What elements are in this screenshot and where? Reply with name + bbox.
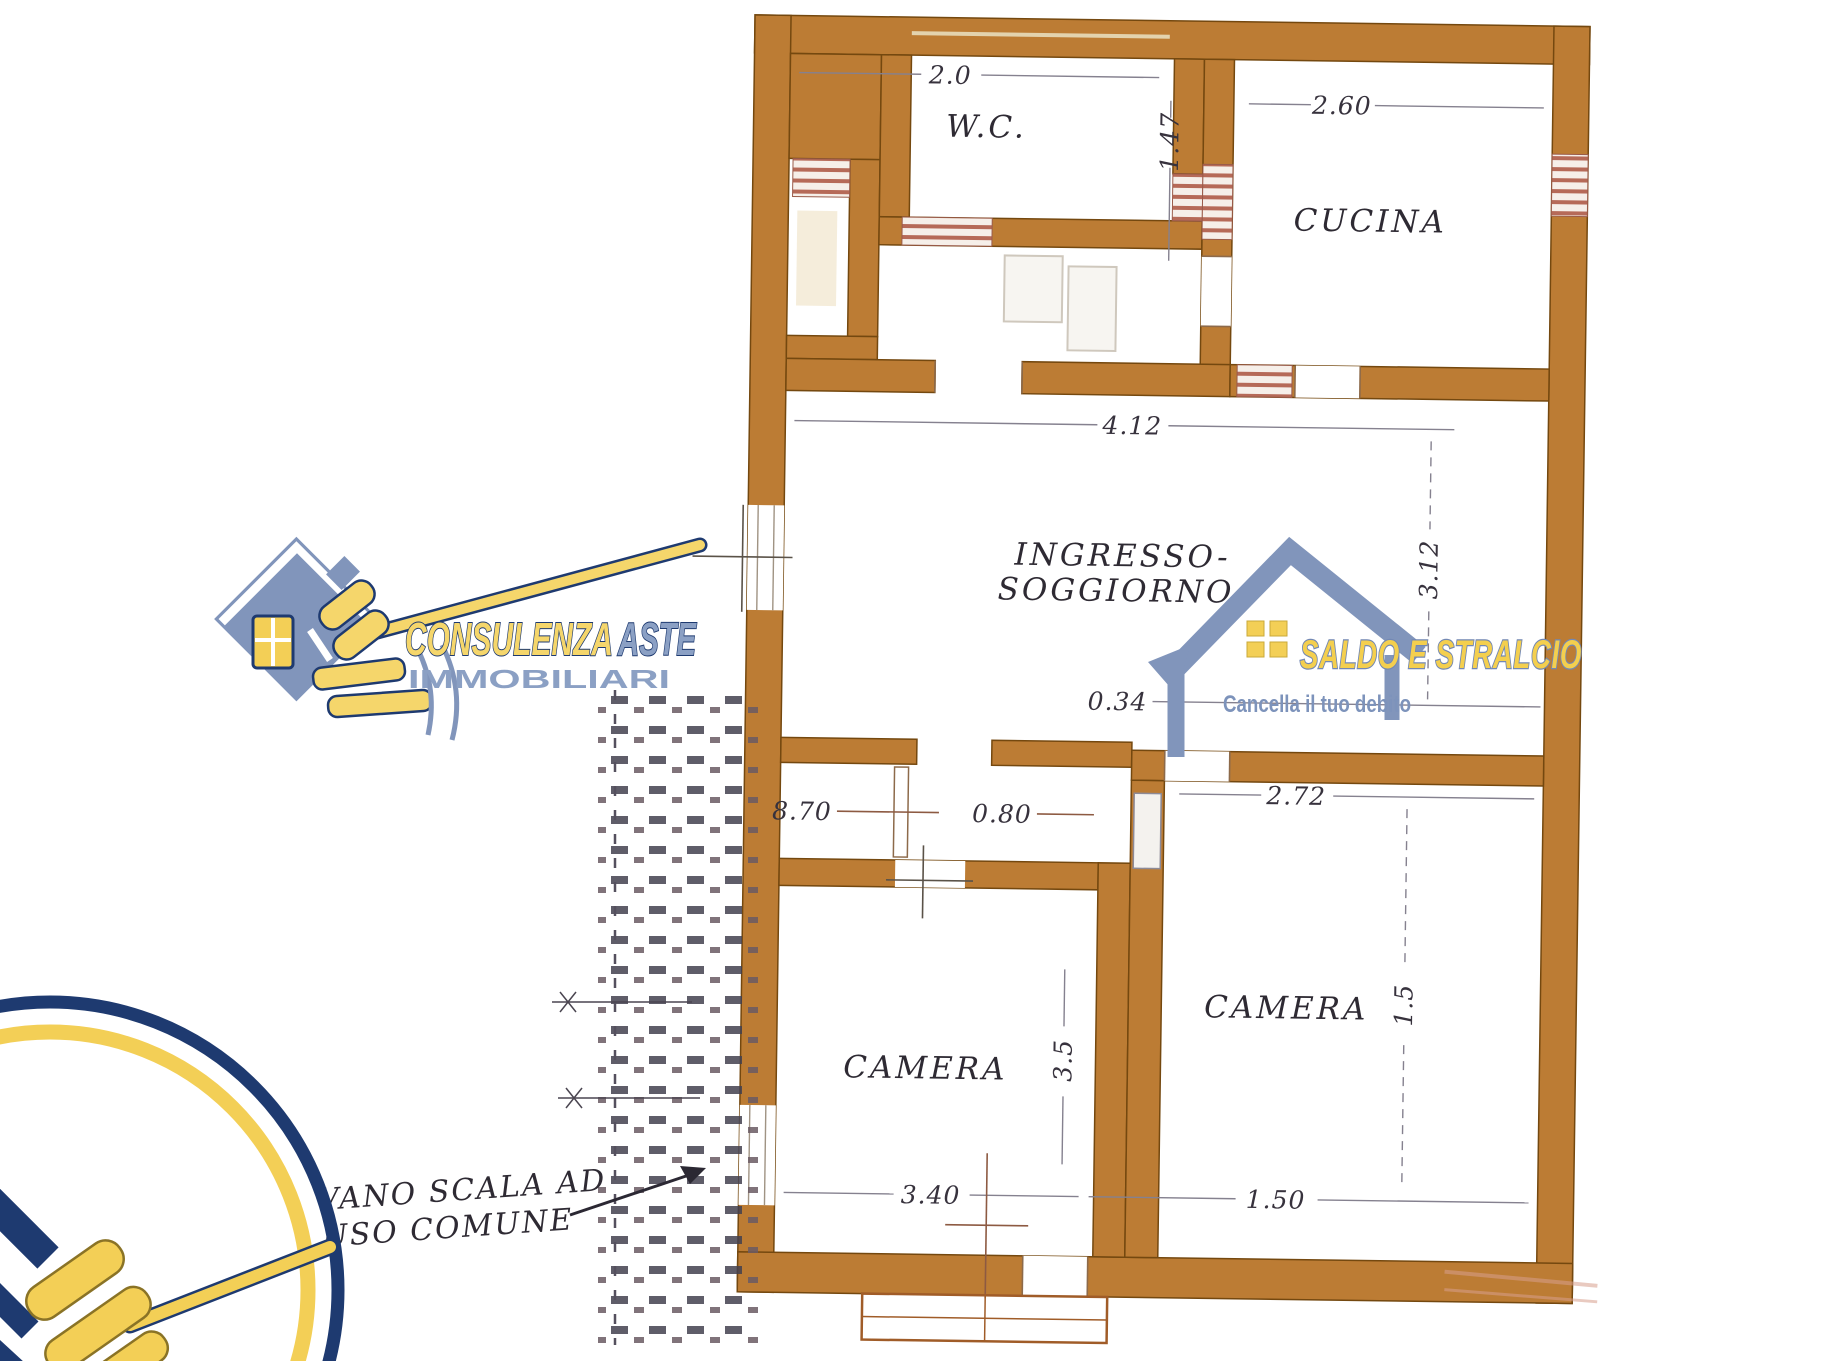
saldo-title: SALDO E STRALCIO bbox=[1300, 633, 1582, 677]
floorplan-canvas: 2.0 1.47 2.60 4.12 3.12 0.34 8.70 0.80 2… bbox=[0, 0, 1847, 1361]
room-label-cucina: CUCINA bbox=[1293, 202, 1447, 240]
dim-camera-left-width: 3.40 bbox=[901, 1180, 961, 1210]
dim-wc-width: 2.0 bbox=[928, 60, 972, 90]
vent-shaft-wc bbox=[902, 217, 992, 246]
vent-shaft-wc-right bbox=[1172, 174, 1203, 221]
dim-wc-depth: 1.47 bbox=[1155, 112, 1185, 172]
wall-block-topleft bbox=[789, 53, 881, 159]
dim-soggiorno-depth: 3.12 bbox=[1414, 539, 1444, 599]
dim-camera-right-width: 1.50 bbox=[1246, 1185, 1306, 1215]
door-balcony bbox=[1022, 1256, 1088, 1297]
circle-navy-roof bbox=[0, 1195, 48, 1258]
fixture-corridor-2 bbox=[1067, 266, 1116, 351]
dim-cucina-width: 2.60 bbox=[1311, 91, 1372, 121]
stair-treads-pattern bbox=[598, 688, 758, 1346]
room-label-wc: W.C. bbox=[946, 109, 1027, 146]
vent-shaft-right-wall bbox=[1551, 154, 1588, 216]
fixture-annex bbox=[796, 211, 837, 307]
consulenza-word3: IMMOBILIARI bbox=[408, 664, 670, 694]
wall-soggiorno-top-right bbox=[1022, 362, 1230, 397]
dim-camera-right-top: 2.72 bbox=[1265, 781, 1326, 811]
vent-shaft-annex bbox=[793, 158, 851, 197]
stairwell bbox=[552, 688, 758, 1346]
dim-entry-a: 8.70 bbox=[772, 796, 832, 826]
vent-shaft-corridor bbox=[1202, 164, 1233, 239]
wall-annex-bottom bbox=[786, 335, 877, 359]
floorplan: 2.0 1.47 2.60 4.12 3.12 0.34 8.70 0.80 2… bbox=[682, 14, 1615, 1350]
circle-logo bbox=[0, 1002, 338, 1361]
door-camera-left bbox=[895, 860, 965, 888]
dim-wall-offset: 0.34 bbox=[1087, 687, 1147, 717]
vent-shaft-cucina bbox=[1237, 365, 1292, 398]
room-label-ingresso-2: SOGGIORNO bbox=[997, 571, 1234, 610]
room-label-camera-right: CAMERA bbox=[1204, 989, 1369, 1027]
consulenza-word1: CONSULENZA bbox=[405, 613, 613, 665]
consulenza-word2: ASTE bbox=[617, 613, 696, 665]
saldo-window bbox=[1247, 621, 1287, 657]
wall-mid-a bbox=[781, 737, 917, 764]
saldo-subtitle: Cancella il tuo debito bbox=[1223, 691, 1411, 718]
wall-camera-left-right bbox=[1093, 863, 1130, 1257]
dim-soggiorno-width: 4.12 bbox=[1101, 411, 1162, 441]
wall-wc-left bbox=[879, 55, 911, 217]
door-corridor-cucina bbox=[1201, 256, 1232, 326]
circle-navy-bottom bbox=[0, 1340, 40, 1361]
dim-entry-b: 0.80 bbox=[972, 799, 1032, 829]
dim-camera-left-depth: 3.5 bbox=[1048, 1039, 1078, 1082]
radiator-camera-right bbox=[1133, 793, 1161, 868]
fixture-corridor-1 bbox=[1004, 255, 1063, 322]
room-label-ingresso-1: INGRESSO- bbox=[1013, 537, 1231, 576]
dimension-lines bbox=[782, 73, 1549, 1306]
wall-soggiorno-top-left bbox=[786, 358, 935, 392]
room-label-camera-left: CAMERA bbox=[843, 1049, 1008, 1087]
door-cucina bbox=[1295, 366, 1360, 399]
window-cross-v bbox=[742, 505, 743, 612]
balcony bbox=[862, 1294, 1108, 1343]
floorplan-page: { "colors": { "wall": "#bc7c34", "wall_s… bbox=[0, 0, 1847, 1361]
wall-annex-right bbox=[848, 159, 880, 336]
wall-mid-b bbox=[992, 740, 1132, 767]
dim-camera-right-depth: 1.5 bbox=[1389, 984, 1419, 1027]
